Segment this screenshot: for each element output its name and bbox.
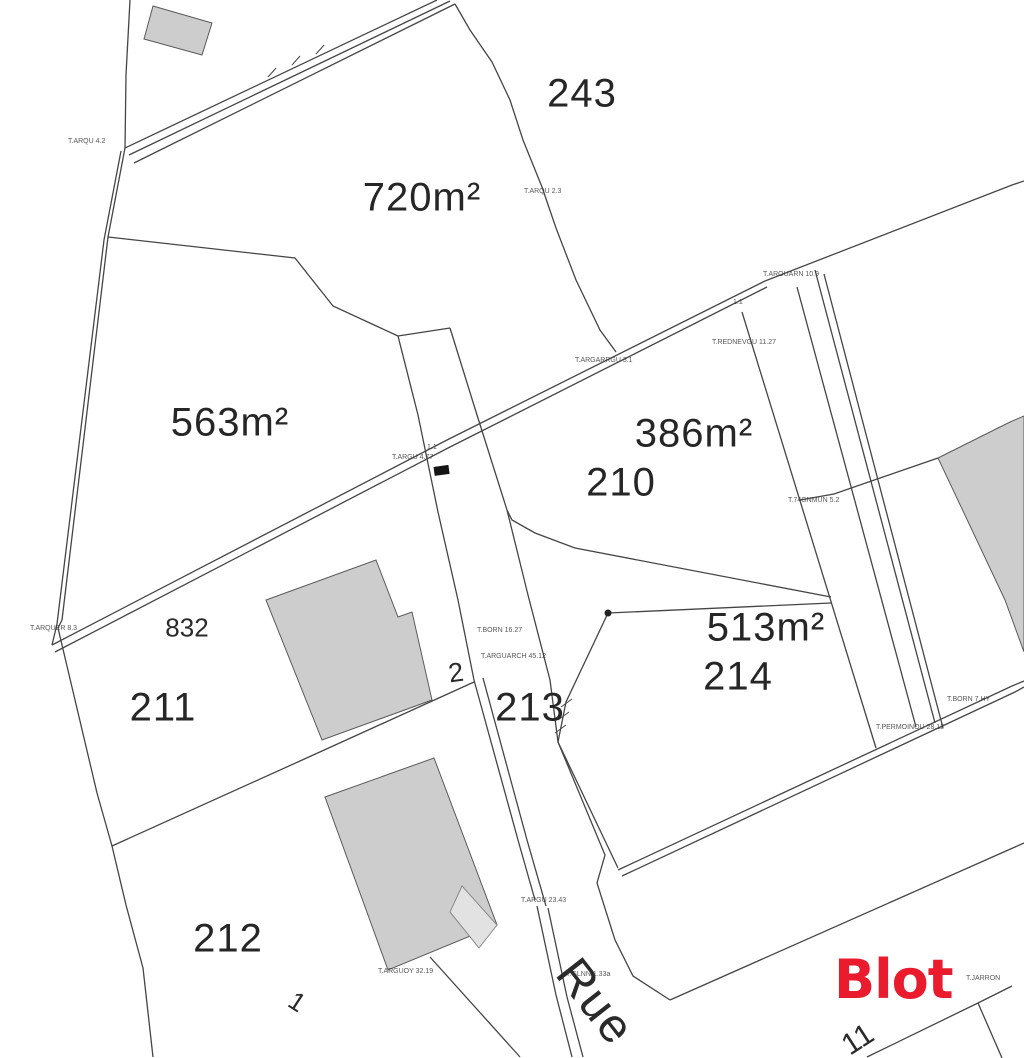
survey-marker: T.74GNMUN 5.2 — [788, 497, 839, 504]
parcel-label-213: 213 — [495, 686, 565, 731]
survey-marker: T.GLNN 1.33a — [566, 971, 610, 978]
area-label-563: 563m² — [171, 401, 289, 446]
survey-marker: T.PERMOINOU 28.12 — [876, 724, 944, 731]
area-label-513: 513m² — [707, 606, 825, 651]
survey-marker: T.JARRON — [966, 975, 1000, 982]
cadastral-map — [0, 0, 1024, 1058]
survey-marker: 1.1 — [427, 444, 437, 451]
survey-points — [434, 465, 612, 617]
buildings — [144, 6, 1024, 970]
parcel-label-243: 243 — [547, 72, 617, 117]
parcel-label-211: 211 — [130, 686, 197, 731]
survey-marker: T.ARQU 4.2 — [68, 138, 105, 145]
survey-marker: T.BORN 7.HY — [947, 696, 990, 703]
building-top-left — [144, 6, 212, 55]
boundary-point-dot — [605, 610, 612, 617]
boundary-stone-marker — [434, 465, 450, 476]
survey-marker: T.BORN 16.27 — [477, 627, 522, 634]
survey-marker: T.ARGU 4.77 — [392, 454, 433, 461]
survey-marker: T.AROUARN 10.9 — [763, 271, 819, 278]
survey-marker: 1.1 — [733, 299, 743, 306]
survey-marker: T.ARGARRGU 3.1 — [575, 357, 633, 364]
parcel-label-212: 212 — [193, 917, 263, 962]
survey-marker: T.REDNEVGU 11.27 — [712, 339, 776, 346]
parcel-label-210: 210 — [586, 461, 656, 506]
survey-marker: T.ARQUER 8.3 — [30, 625, 77, 632]
area-label-386: 386m² — [635, 412, 753, 457]
parcel-label-832: 832 — [165, 613, 208, 644]
blot-logo: Blot — [834, 952, 964, 1012]
building-east-edge — [938, 416, 1024, 652]
area-label-720: 720m² — [363, 176, 481, 221]
parcel-label-214: 214 — [703, 655, 773, 700]
survey-marker: T.ARQU 2.3 — [524, 188, 561, 195]
survey-marker: T.ARGUARCH 45.12 — [481, 653, 546, 660]
cadastral-map-page: 243 720m² 563m² 386m² 210 832 211 213 51… — [0, 0, 1024, 1058]
survey-marker: T.ARGUOY 32.19 — [378, 968, 433, 975]
survey-marker: T.ARGU 23.43 — [521, 897, 566, 904]
